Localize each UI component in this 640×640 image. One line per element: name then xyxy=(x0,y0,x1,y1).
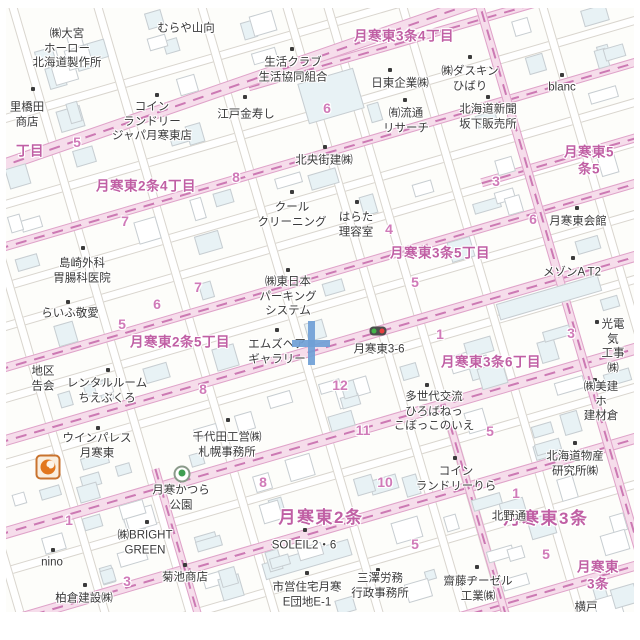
map-margin-frame xyxy=(0,0,640,640)
map-margin-top xyxy=(0,0,640,8)
map-margin-bottom xyxy=(0,612,640,640)
map-canvas[interactable]: 月寒東3条4丁目月寒東5条5丁目月寒東2条4丁目月寒東3条5丁目月寒東2条5丁目… xyxy=(0,0,640,640)
map-screenshot: 月寒東3条4丁目月寒東5条5丁目月寒東2条4丁目月寒東3条5丁目月寒東2条5丁目… xyxy=(0,0,640,640)
map-margin-left xyxy=(0,0,6,640)
map-margin-right xyxy=(634,0,640,640)
